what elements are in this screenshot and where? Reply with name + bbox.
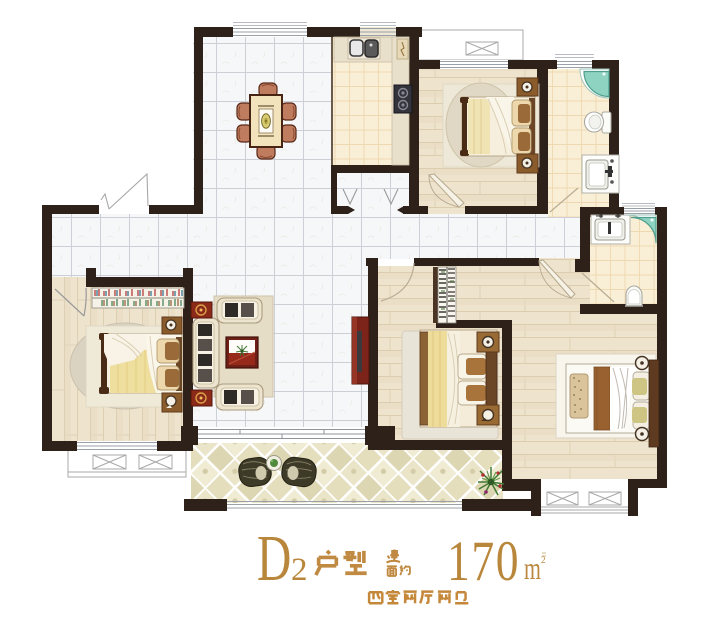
- svg-text:m: m: [524, 551, 541, 586]
- svg-text:170: 170: [447, 530, 520, 593]
- svg-text:2: 2: [541, 555, 546, 565]
- svg-text:D: D: [257, 523, 291, 595]
- svg-text:2: 2: [291, 552, 308, 588]
